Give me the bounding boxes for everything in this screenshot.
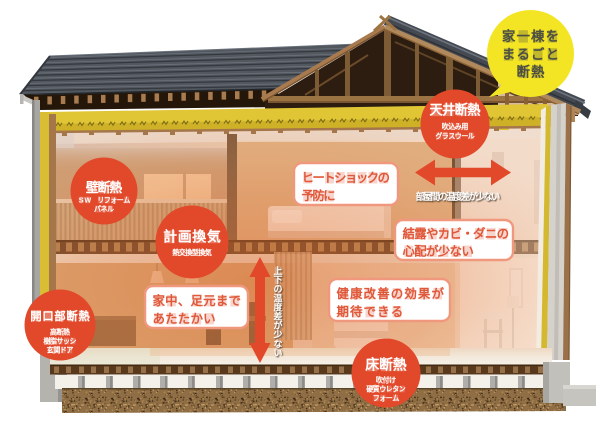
svg-text:SW リフォーム: SW リフォーム — [79, 196, 131, 205]
svg-text:まるごと: まるごと — [502, 46, 559, 62]
svg-text:熱交換型換気: 熱交換型換気 — [172, 248, 212, 257]
svg-text:高断熱: 高断熱 — [50, 328, 71, 337]
svg-text:玄関ドア: 玄関ドア — [47, 346, 74, 355]
svg-text:ヒートショックの: ヒートショックの — [301, 171, 390, 185]
svg-text:パネル: パネル — [94, 205, 115, 214]
svg-text:健康改善の効果が: 健康改善の効果が — [336, 286, 444, 301]
svg-text:壁断熱: 壁断熱 — [86, 180, 123, 195]
svg-text:吹込み用: 吹込み用 — [442, 122, 469, 131]
svg-text:樹脂サッシ: 樹脂サッシ — [43, 337, 76, 346]
svg-text:予防に: 予防に — [301, 188, 335, 203]
svg-text:断熱: 断熱 — [516, 64, 545, 80]
svg-text:床断熱: 床断熱 — [365, 357, 406, 373]
svg-text:フォーム: フォーム — [373, 394, 400, 403]
svg-text:上下の温度差が少ない: 上下の温度差が少ない — [272, 265, 283, 358]
svg-text:グラスウール: グラスウール — [435, 132, 475, 141]
svg-text:部屋間の温度差が少ない: 部屋間の温度差が少ない — [416, 191, 501, 203]
svg-text:家中、足元まで: 家中、足元まで — [152, 293, 241, 308]
svg-text:開口部断熱: 開口部断熱 — [30, 309, 90, 323]
svg-text:あたたかい: あたたかい — [152, 312, 215, 326]
svg-text:硬質ウレタン: 硬質ウレタン — [366, 385, 406, 394]
svg-text:吹付け: 吹付け — [376, 376, 396, 385]
svg-text:期待できる: 期待できる — [336, 304, 403, 319]
svg-text:結露やカビ・ダニの: 結露やカビ・ダニの — [402, 226, 509, 241]
svg-text:心配が少ない: 心配が少ない — [402, 244, 473, 259]
svg-text:計画換気: 計画換気 — [163, 229, 221, 245]
svg-text:家一棟を: 家一棟を — [502, 28, 559, 44]
svg-text:天井断熱: 天井断熱 — [429, 102, 481, 118]
